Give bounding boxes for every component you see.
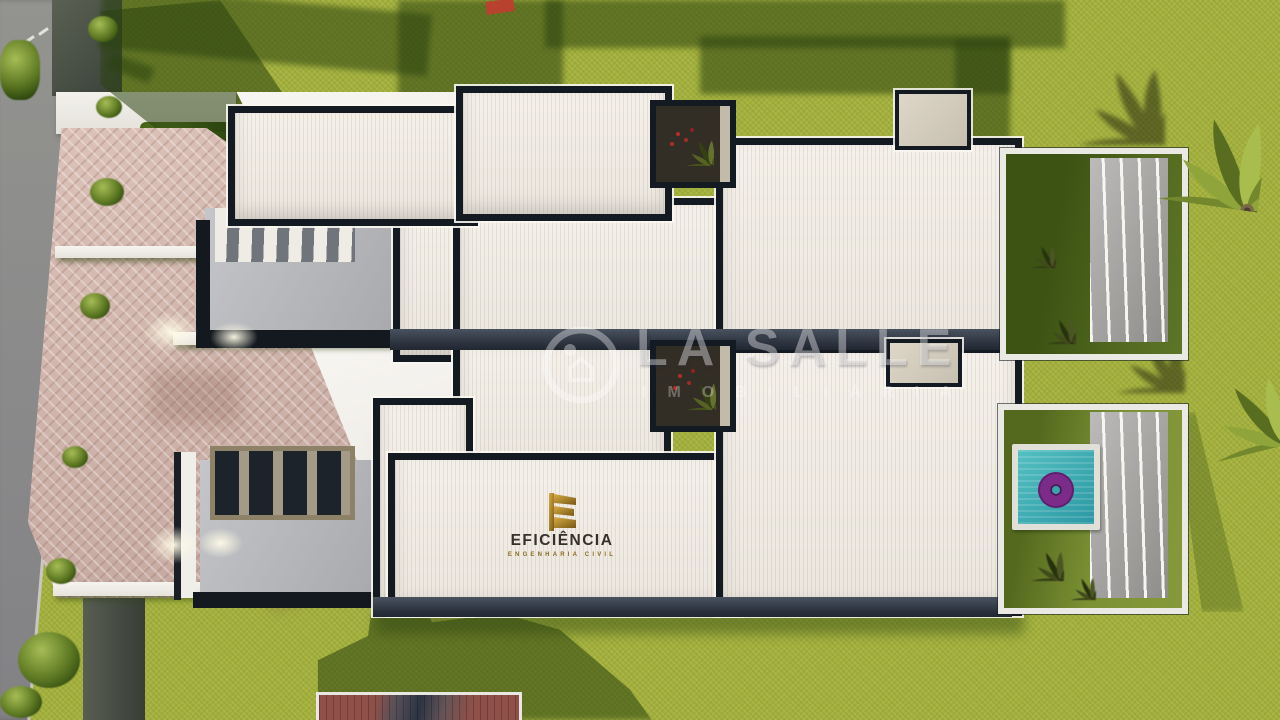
gold-e-bars-icon: [545, 492, 579, 532]
roof-block-top-house-front: [228, 106, 478, 226]
realty-ring-badge-icon: [540, 324, 622, 406]
verge-bush: [46, 558, 76, 584]
roof-tab-top-house: [895, 90, 971, 150]
yard-plant: [1040, 550, 1096, 600]
courtyard-plant: [652, 108, 714, 166]
verge-bush: [96, 96, 122, 118]
neighbor-dark-band-bottom-left: [83, 592, 145, 720]
lawn-shadow: [398, 0, 563, 100]
yard-plant: [1000, 218, 1056, 268]
builder-name: EFICIÊNCIA: [496, 532, 628, 550]
verge-bush: [80, 293, 110, 319]
verge-tree: [0, 40, 40, 100]
palm-tree-top-right: [1039, 0, 1280, 212]
verge-tree: [18, 632, 80, 688]
neighbor-roof-bottom: [316, 692, 522, 720]
wall-light: [210, 322, 258, 352]
pool-float-ring: [1040, 474, 1072, 506]
yard-plant: [1012, 288, 1076, 344]
builder-tagline: ENGENHARIA CIVIL: [496, 552, 628, 558]
courtyard-flowers: [676, 132, 680, 136]
verge-bush: [62, 446, 88, 468]
paver-branch-shadow: [150, 370, 240, 425]
aerial-render-scene: EFICIÊNCIA ENGENHARIA CIVIL LA SALLE IMO…: [0, 0, 1280, 720]
roof-block-top-house-upper: [456, 86, 672, 221]
garage-wall-top-house: [196, 220, 210, 348]
side-wall-white: [180, 452, 196, 598]
parapet-fascia-bottom-house: [373, 597, 1012, 617]
watermark-subtitle: IMOBILIÁRIA: [636, 384, 973, 402]
verge-bush: [90, 178, 124, 206]
wall-light: [148, 526, 200, 564]
pergola-dark-bottom-house: [210, 446, 355, 520]
verge-tree: [0, 686, 42, 718]
verge-bush: [88, 16, 118, 42]
builder-logo: EFICIÊNCIA ENGENHARIA CIVIL: [496, 492, 628, 564]
wall-light: [143, 312, 198, 352]
watermark: LA SALLE IMOBILIÁRIA: [540, 318, 1010, 414]
wall-light: [198, 528, 243, 558]
watermark-brand: LA SALLE: [636, 318, 973, 378]
